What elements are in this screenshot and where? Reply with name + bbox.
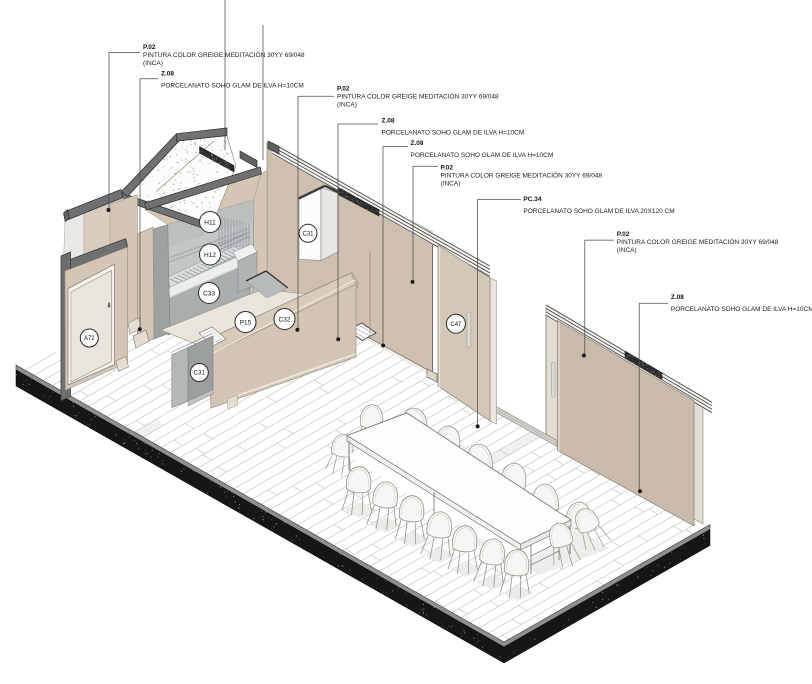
svg-text:PINTURA COLOR GREIGE MEDITACIÓ: PINTURA COLOR GREIGE MEDITACIÓN 30YY 69/… bbox=[441, 171, 603, 180]
svg-text:PORCELANATO SOHO GLAM DE ILVA: PORCELANATO SOHO GLAM DE ILVA H=10CM bbox=[382, 129, 525, 136]
svg-text:Z.08: Z.08 bbox=[671, 294, 684, 301]
svg-text:A72: A72 bbox=[84, 336, 95, 342]
svg-text:H12: H12 bbox=[204, 252, 216, 259]
svg-text:H11: H11 bbox=[204, 219, 216, 226]
svg-text:(INCA): (INCA) bbox=[441, 181, 461, 188]
svg-text:P15: P15 bbox=[240, 319, 252, 326]
svg-text:PORCELANATO SOHO GLAM DE ILVA: PORCELANATO SOHO GLAM DE ILVA H=10CM bbox=[411, 152, 554, 159]
svg-text:P.02: P.02 bbox=[143, 44, 156, 51]
svg-text:Z.08: Z.08 bbox=[411, 140, 424, 147]
svg-text:PINTURA COLOR GREIGE MEDITACIÓ: PINTURA COLOR GREIGE MEDITACIÓN 30YY 69/… bbox=[337, 91, 499, 100]
svg-text:(INCA): (INCA) bbox=[337, 101, 357, 108]
svg-text:PC.34: PC.34 bbox=[523, 196, 541, 203]
svg-text:Z.08: Z.08 bbox=[161, 70, 174, 77]
svg-text:C31: C31 bbox=[302, 232, 314, 238]
svg-text:(INCA): (INCA) bbox=[143, 60, 163, 67]
svg-text:P.02: P.02 bbox=[337, 85, 350, 92]
svg-text:C33: C33 bbox=[203, 290, 215, 297]
svg-text:C47: C47 bbox=[450, 322, 462, 328]
svg-text:PORCELANATO SOHO GLAM DE ILVA: PORCELANATO SOHO GLAM DE ILVA H=10CM bbox=[671, 306, 812, 313]
svg-text:Z.08: Z.08 bbox=[382, 117, 395, 124]
svg-text:P.02: P.02 bbox=[441, 165, 454, 172]
svg-text:P.02: P.02 bbox=[617, 231, 630, 238]
svg-text:PINTURA COLOR GREIGE MEDITACIÓ: PINTURA COLOR GREIGE MEDITACIÓN 30YY 69/… bbox=[617, 237, 779, 246]
svg-text:(INCA): (INCA) bbox=[617, 247, 637, 254]
svg-text:C31: C31 bbox=[194, 371, 206, 377]
svg-text:PINTURA COLOR GREIGE MEDITACIÓ: PINTURA COLOR GREIGE MEDITACIÓN 30YY 69/… bbox=[143, 50, 305, 59]
svg-text:PORCELANATO SOHO GLAM DE ILVA: PORCELANATO SOHO GLAM DE ILVA H=10CM bbox=[161, 82, 304, 89]
svg-text:PORCELANATO SOHO GLAM DE ILVA: PORCELANATO SOHO GLAM DE ILVA 20X120 CM bbox=[523, 208, 674, 215]
svg-text:C32: C32 bbox=[279, 316, 291, 323]
